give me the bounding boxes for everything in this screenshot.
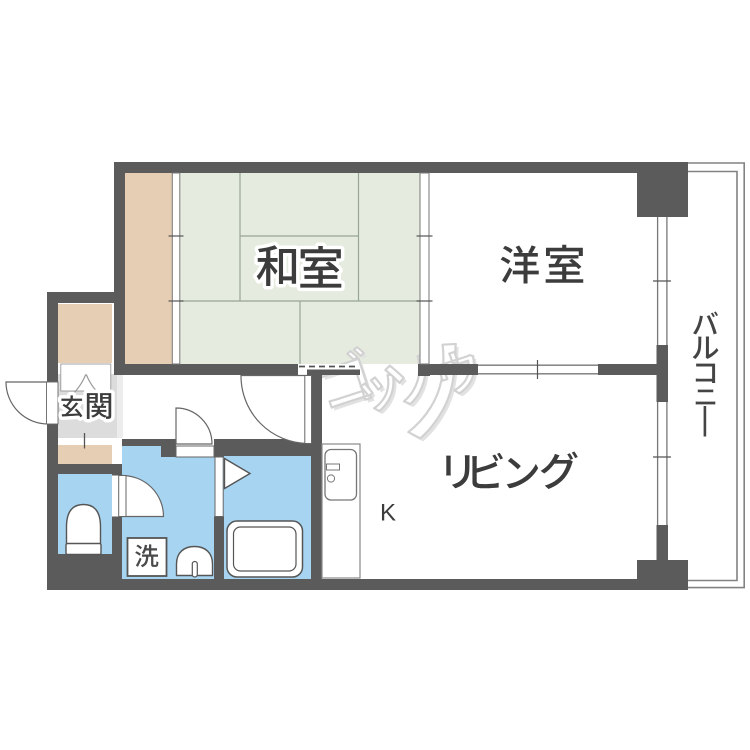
svg-text:K: K bbox=[380, 500, 396, 527]
